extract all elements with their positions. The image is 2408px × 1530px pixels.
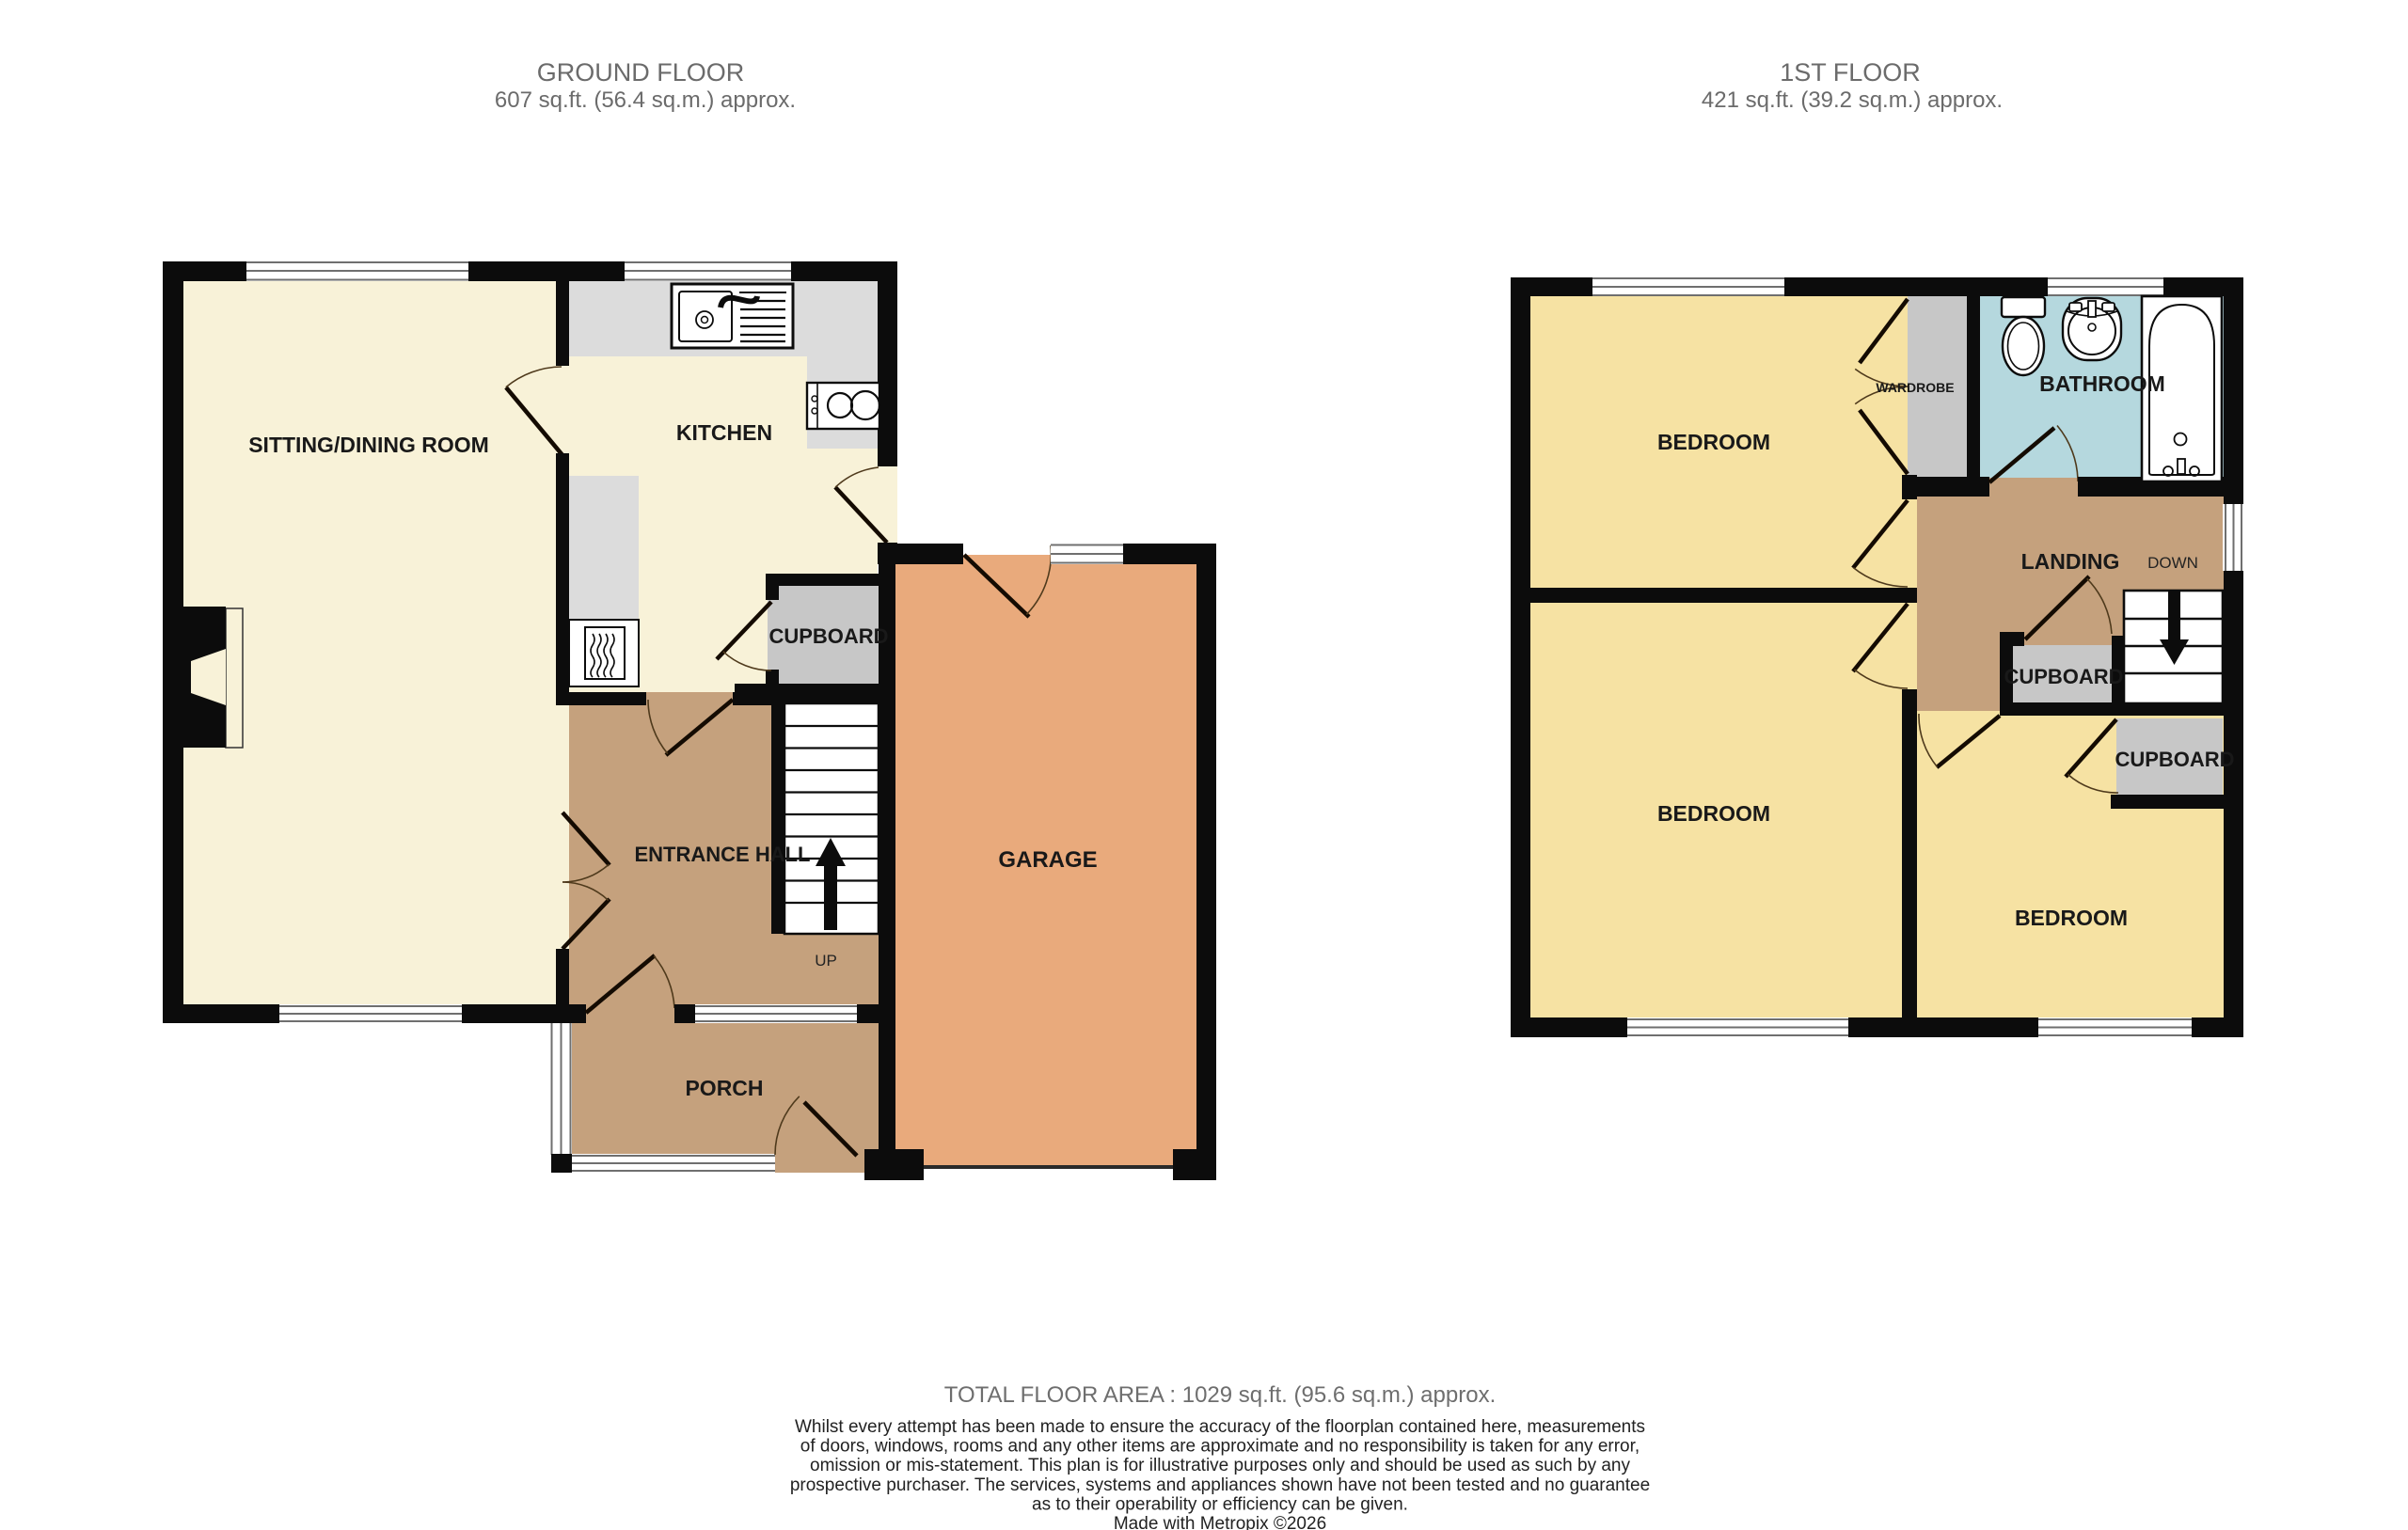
svg-text:KITCHEN: KITCHEN: [676, 420, 772, 445]
svg-text:prospective purchaser. The ser: prospective purchaser. The services, sys…: [790, 1475, 1650, 1495]
svg-text:CUPBOARD: CUPBOARD: [2004, 665, 2123, 688]
svg-text:607 sq.ft. (56.4 sq.m.) approx: 607 sq.ft. (56.4 sq.m.) approx.: [495, 87, 796, 113]
svg-text:LANDING: LANDING: [2021, 549, 2120, 574]
svg-text:BATHROOM: BATHROOM: [2039, 371, 2165, 396]
svg-text:Made with Metropix ©2026: Made with Metropix ©2026: [1114, 1514, 1326, 1530]
svg-text:SITTING/DINING ROOM: SITTING/DINING ROOM: [248, 433, 489, 457]
svg-text:1ST FLOOR: 1ST FLOOR: [1780, 58, 1921, 87]
svg-text:Whilst every attempt has been: Whilst every attempt has been made to en…: [795, 1417, 1645, 1437]
svg-text:WARDROBE: WARDROBE: [1876, 380, 1954, 395]
svg-text:PORCH: PORCH: [685, 1076, 763, 1100]
svg-text:BEDROOM: BEDROOM: [1657, 801, 1770, 826]
svg-text:BEDROOM: BEDROOM: [1657, 430, 1770, 454]
svg-text:GROUND FLOOR: GROUND FLOOR: [537, 58, 745, 87]
svg-text:UP: UP: [815, 952, 837, 970]
svg-text:CUPBOARD: CUPBOARD: [2115, 748, 2234, 771]
svg-text:omission or mis-statement. Thi: omission or mis-statement. This plan is …: [810, 1456, 1630, 1475]
svg-text:421 sq.ft. (39.2 sq.m.) approx: 421 sq.ft. (39.2 sq.m.) approx.: [1702, 87, 2003, 113]
svg-text:BEDROOM: BEDROOM: [2015, 906, 2128, 930]
svg-text:ENTRANCE HALL: ENTRANCE HALL: [635, 843, 811, 866]
svg-text:GARAGE: GARAGE: [998, 847, 1097, 873]
svg-text:DOWN: DOWN: [2147, 554, 2198, 572]
svg-text:of doors, windows, rooms and a: of doors, windows, rooms and any other i…: [800, 1437, 1640, 1457]
svg-text:as to their operability or eff: as to their operability or efficiency ca…: [1032, 1494, 1408, 1514]
svg-text:CUPBOARD: CUPBOARD: [768, 624, 888, 648]
svg-text:TOTAL FLOOR AREA : 1029 sq.ft.: TOTAL FLOOR AREA : 1029 sq.ft. (95.6 sq.…: [944, 1382, 1496, 1408]
